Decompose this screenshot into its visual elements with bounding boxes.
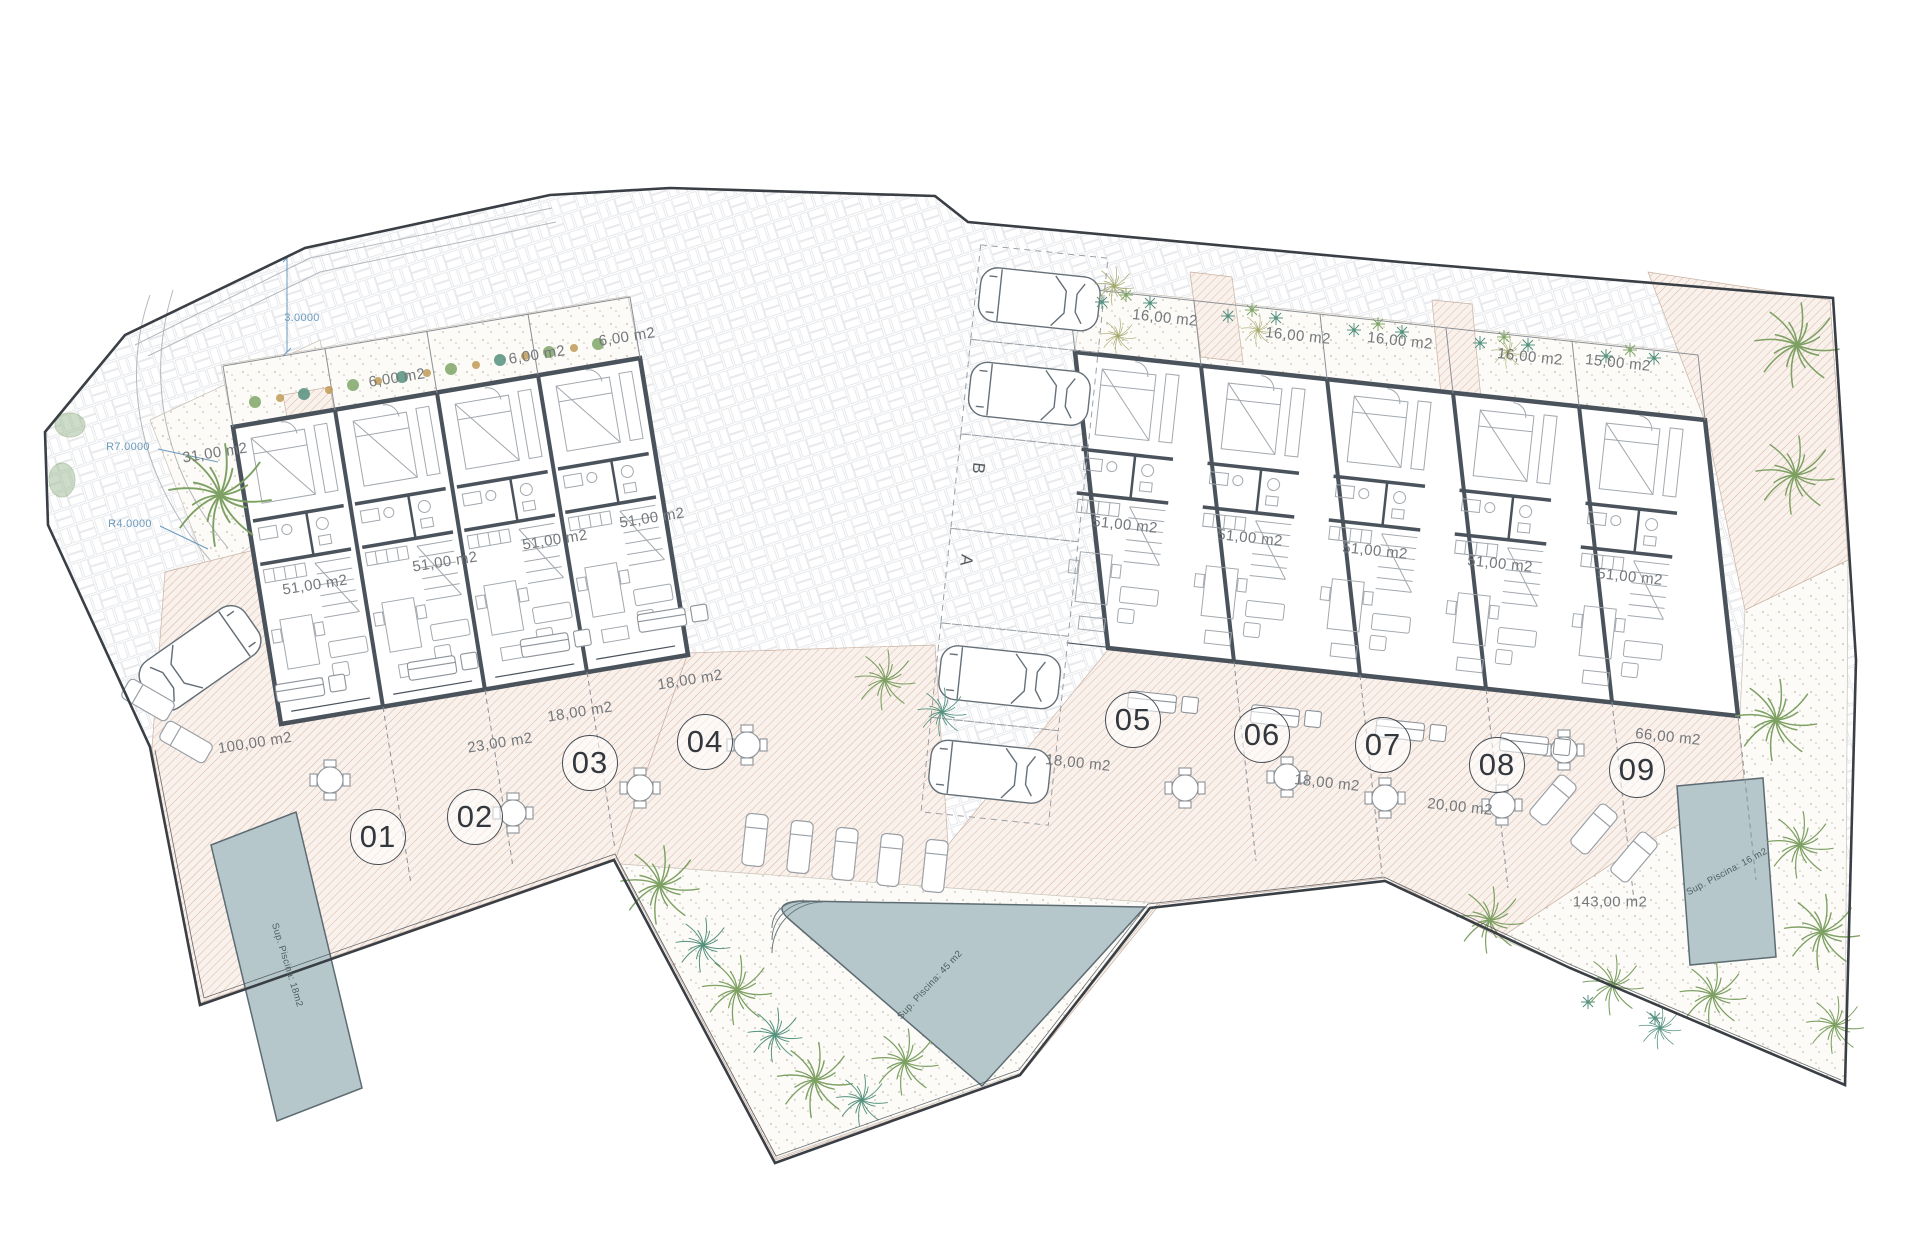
car (967, 361, 1092, 427)
pool-right (1677, 778, 1776, 965)
plan-drawing (0, 0, 1920, 1243)
car (937, 644, 1062, 710)
car (977, 266, 1102, 332)
site-plan: 6,00 m26,00 m26,00 m231,00 m251,00 m251,… (0, 0, 1920, 1243)
car (927, 739, 1052, 805)
